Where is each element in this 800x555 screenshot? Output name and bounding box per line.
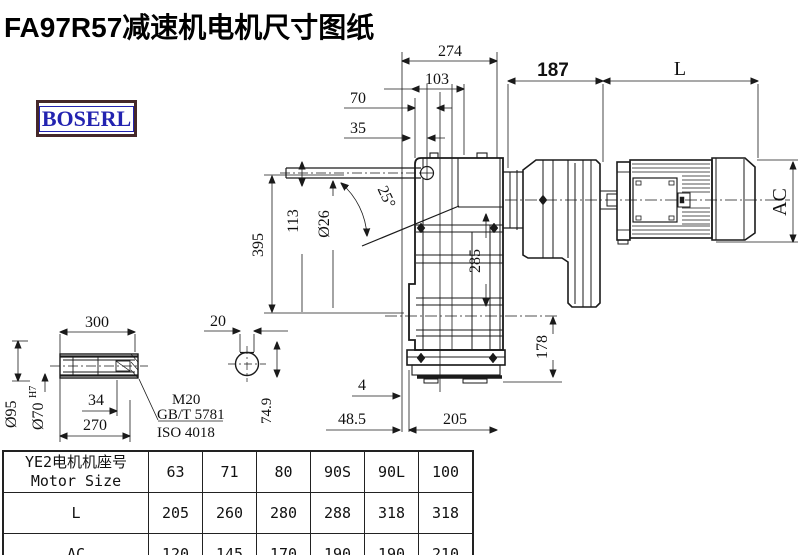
table-row-AC: AC 120 145 170 190 190 210: [3, 534, 473, 555]
dim-113: 113: [285, 209, 302, 232]
thread-spec: M20: [172, 392, 200, 408]
size-col-71: 71: [203, 451, 257, 493]
standard-gb: GB/T 5781: [157, 407, 225, 423]
cell-AC-0: 120: [149, 534, 203, 555]
size-col-90s: 90S: [311, 451, 365, 493]
cell-L-4: 318: [365, 493, 419, 534]
dim-274: 274: [438, 43, 462, 60]
table-header-row: YE2电机机座号 Motor Size 63 71 80 90S 90L 100: [3, 451, 473, 493]
dim-285: 285: [467, 249, 484, 273]
table-header-cell: YE2电机机座号 Motor Size: [3, 451, 149, 493]
cell-L-3: 288: [311, 493, 365, 534]
dim-95: Ø95: [3, 400, 20, 428]
standard-iso: ISO 4018: [157, 425, 215, 441]
dim-25deg: 25°: [374, 183, 399, 210]
size-col-100: 100: [419, 451, 474, 493]
size-col-63: 63: [149, 451, 203, 493]
page: FA97R57减速机电机尺寸图纸 BOSERL: [0, 0, 800, 555]
size-col-80: 80: [257, 451, 311, 493]
dim-34: 34: [88, 392, 104, 409]
dimensions: [12, 61, 793, 436]
cell-AC-5: 210: [419, 534, 474, 555]
dim-103: 103: [425, 71, 449, 88]
dim-70-bore: Ø70: [30, 402, 47, 430]
row-label-L: L: [3, 493, 149, 534]
dim-35: 35: [350, 120, 366, 137]
dim-48-5: 48.5: [338, 411, 366, 428]
header-en: Motor Size: [4, 472, 148, 491]
cell-AC-2: 170: [257, 534, 311, 555]
helical-stage: [503, 160, 617, 307]
table-row-L: L 205 260 280 288 318 318: [3, 493, 473, 534]
dim-187: 187: [537, 60, 569, 81]
dim-205: 205: [443, 411, 467, 428]
cell-AC-3: 190: [311, 534, 365, 555]
cell-AC-1: 145: [203, 534, 257, 555]
size-col-90l: 90L: [365, 451, 419, 493]
input-shaft: [280, 166, 434, 180]
dim-74-9: 74.9: [259, 398, 275, 424]
dim-395: 395: [250, 233, 267, 257]
row-label-AC: AC: [3, 534, 149, 555]
dim-AC: AC: [769, 188, 791, 216]
dim-70-tolerance: H7: [28, 386, 39, 398]
cell-L-1: 260: [203, 493, 257, 534]
header-cn: YE2电机机座号: [4, 453, 148, 472]
dim-L: L: [674, 58, 686, 80]
motor-size-table: YE2电机机座号 Motor Size 63 71 80 90S 90L 100…: [2, 450, 474, 555]
dim-70: 70: [350, 90, 366, 107]
dim-178: 178: [534, 335, 551, 359]
cell-L-2: 280: [257, 493, 311, 534]
cell-L-5: 318: [419, 493, 474, 534]
dim-26: Ø26: [316, 210, 333, 238]
dim-270: 270: [83, 417, 107, 434]
cell-AC-4: 190: [365, 534, 419, 555]
bore-section: [228, 346, 266, 382]
dim-4: 4: [358, 377, 366, 394]
cell-L-0: 205: [149, 493, 203, 534]
dim-300: 300: [85, 314, 109, 331]
dim-20: 20: [210, 313, 226, 330]
dimension-labels: 274 103 70 35 187 L AC 395 113 Ø26 25° 2…: [3, 43, 791, 441]
motor: [385, 158, 790, 316]
